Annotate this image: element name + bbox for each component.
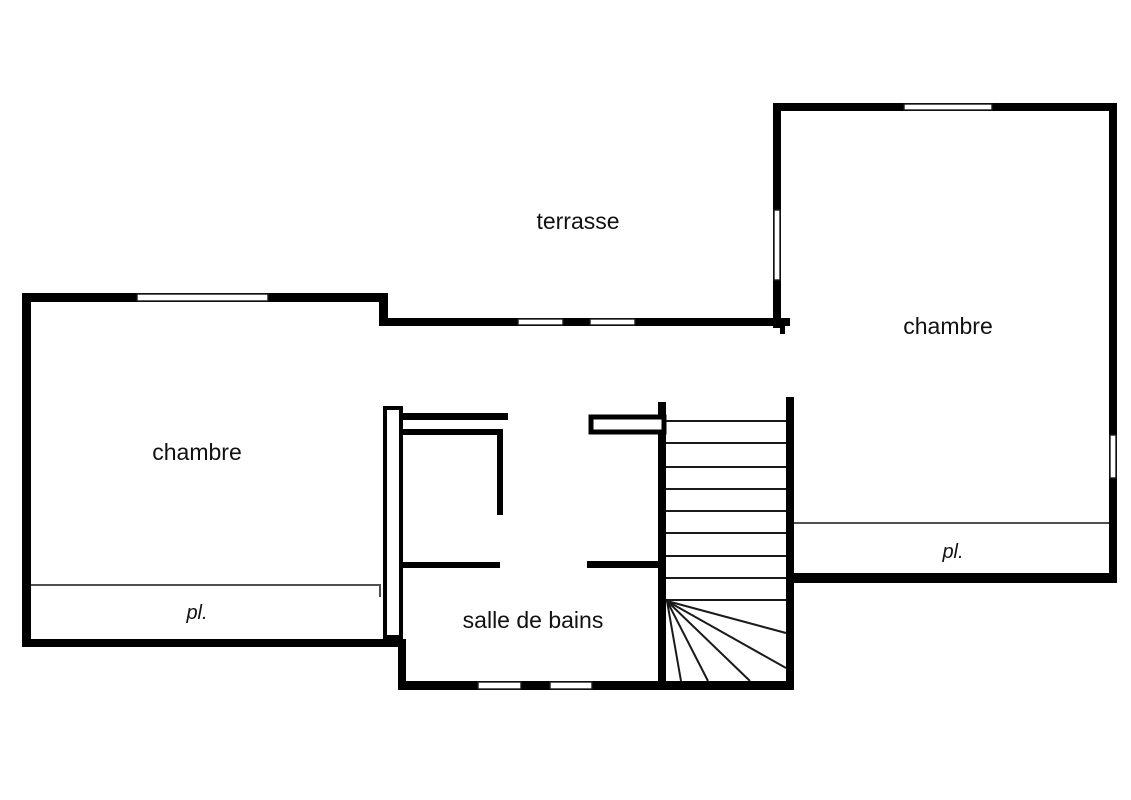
bathroom-left-wall-lower [398, 639, 406, 690]
floor-plan: terrassechambrechambresalle de bainspl.p… [0, 0, 1131, 800]
label-chambre-right: chambre [903, 313, 992, 339]
left-room-left-wall [22, 293, 31, 647]
bathroom-left-partition [385, 408, 401, 637]
bathroom-mid-wall-right [587, 561, 658, 568]
left-room-top-window-icon [137, 294, 268, 301]
bathroom-mid-wall-left [402, 562, 500, 568]
bathroom-bottom-window-2-icon [550, 682, 592, 689]
right-room-left-window-icon [774, 210, 780, 280]
floor-plan-drawing: terrassechambrechambresalle de bainspl.p… [0, 0, 1131, 800]
right-room-right-wall [1109, 103, 1117, 583]
plan-background [0, 0, 1131, 800]
shower-wall-horizontal [403, 429, 503, 435]
label-salle-de-bains: salle de bains [463, 607, 604, 633]
right-room-top-window-icon [904, 104, 992, 110]
terrace-wall [379, 318, 790, 326]
left-room-bottom-wall [22, 639, 406, 647]
terrace-window-2-icon [590, 319, 635, 325]
shower-wall-vertical [497, 429, 503, 515]
bathroom-top-wall [402, 413, 508, 420]
right-room-bottom-wall [786, 573, 1117, 583]
label-terrasse: terrasse [536, 208, 619, 234]
terrace-window-1-icon [518, 319, 563, 325]
stair-landing-partition [591, 417, 664, 432]
bathroom-bottom-window-1-icon [478, 682, 521, 689]
bathroom-bottom-wall [398, 681, 794, 690]
right-room-right-window-icon [1110, 435, 1116, 478]
label-placard-right: pl. [941, 541, 963, 563]
stairwell-right-wall [786, 397, 794, 690]
stairwell-left-wall [658, 402, 666, 690]
label-placard-left: pl. [185, 602, 207, 624]
label-chambre-left: chambre [152, 439, 241, 465]
